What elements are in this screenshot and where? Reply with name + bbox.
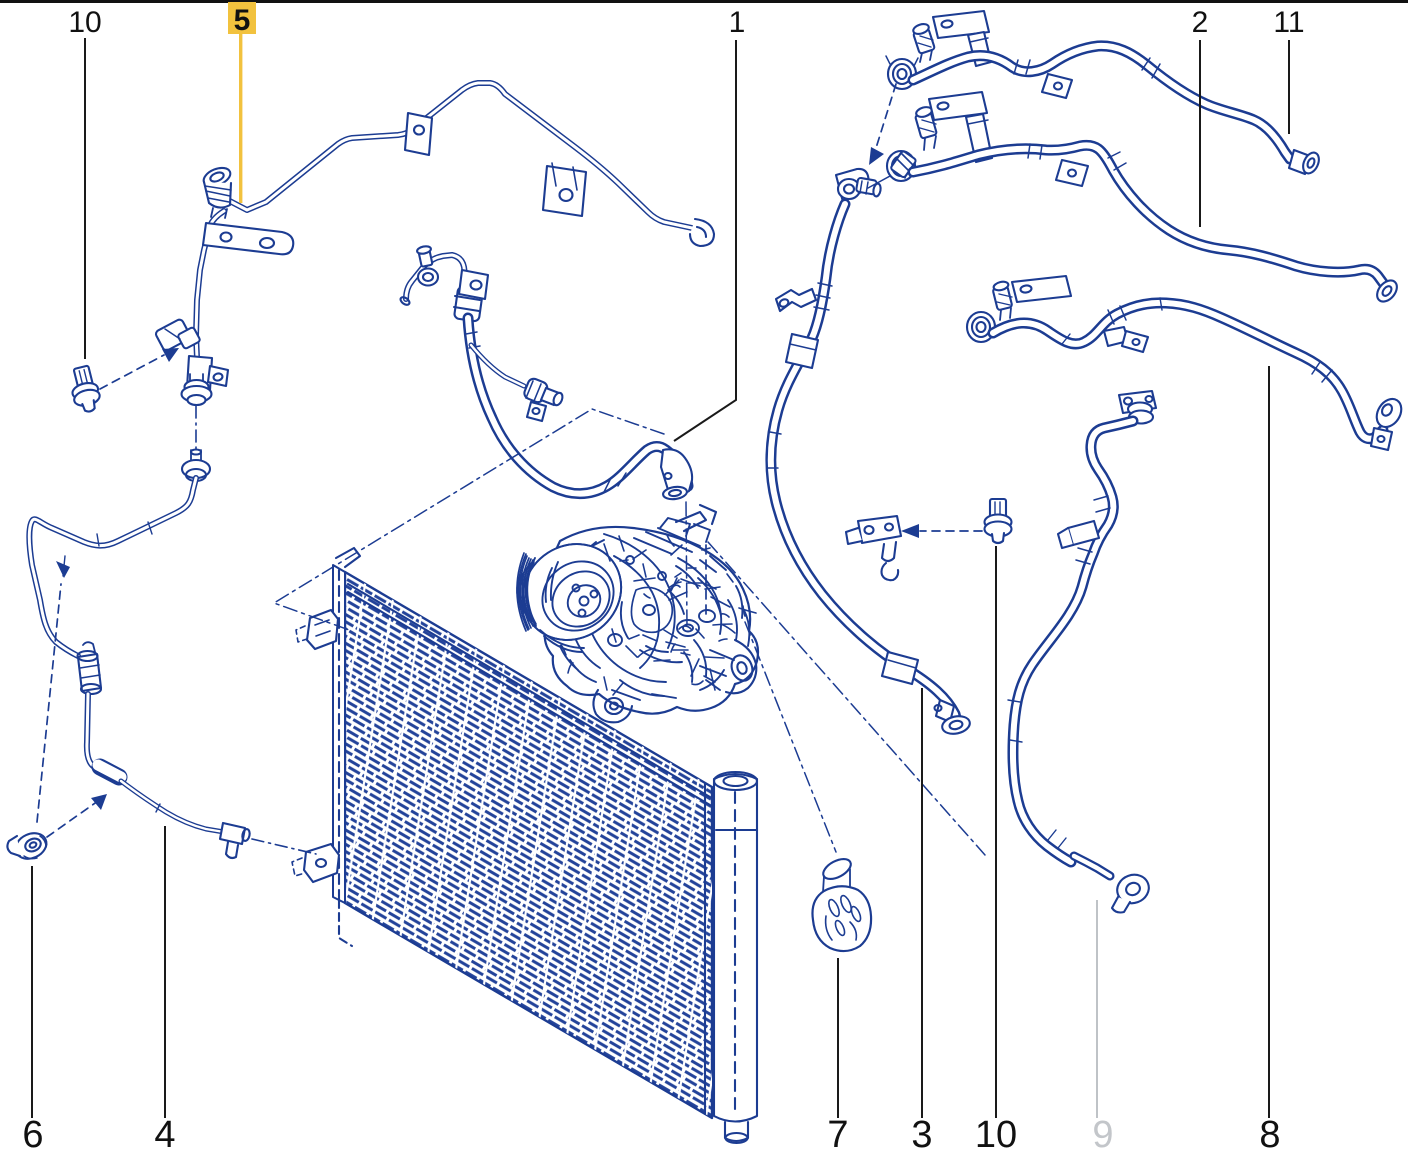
svg-text:4: 4: [154, 1114, 175, 1150]
svg-text:10: 10: [975, 1114, 1017, 1150]
svg-text:8: 8: [1259, 1114, 1280, 1150]
svg-text:5: 5: [234, 4, 251, 37]
svg-text:9: 9: [1092, 1114, 1113, 1150]
svg-text:6: 6: [22, 1114, 43, 1150]
svg-text:11: 11: [1273, 6, 1304, 39]
svg-text:2: 2: [1192, 6, 1209, 39]
svg-text:7: 7: [827, 1114, 848, 1150]
svg-text:3: 3: [911, 1114, 932, 1150]
svg-text:10: 10: [68, 6, 101, 39]
svg-text:1: 1: [729, 6, 746, 39]
